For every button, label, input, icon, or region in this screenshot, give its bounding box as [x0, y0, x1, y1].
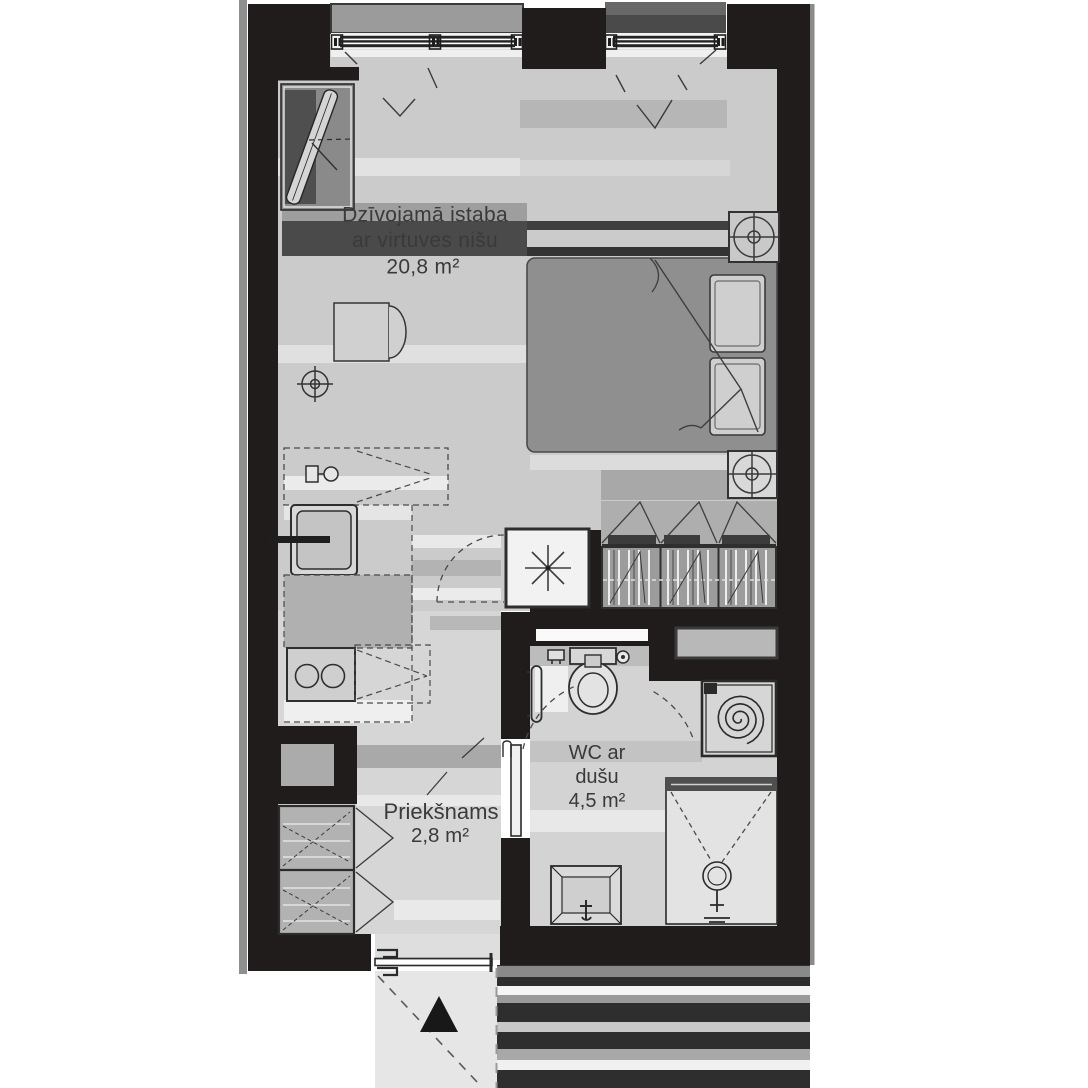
svg-text:2,8 m²: 2,8 m² [411, 824, 469, 847]
svg-text:ar virtuves nišu: ar virtuves nišu [352, 229, 498, 252]
svg-text:dušu: dušu [575, 766, 618, 788]
svg-text:Priekšnams: Priekšnams [384, 799, 499, 824]
svg-text:Dzīvojamā istaba: Dzīvojamā istaba [342, 204, 508, 227]
svg-text:WC ar: WC ar [569, 742, 626, 764]
svg-text:4,5 m²: 4,5 m² [569, 790, 626, 812]
svg-text:20,8 m²: 20,8 m² [386, 256, 459, 279]
